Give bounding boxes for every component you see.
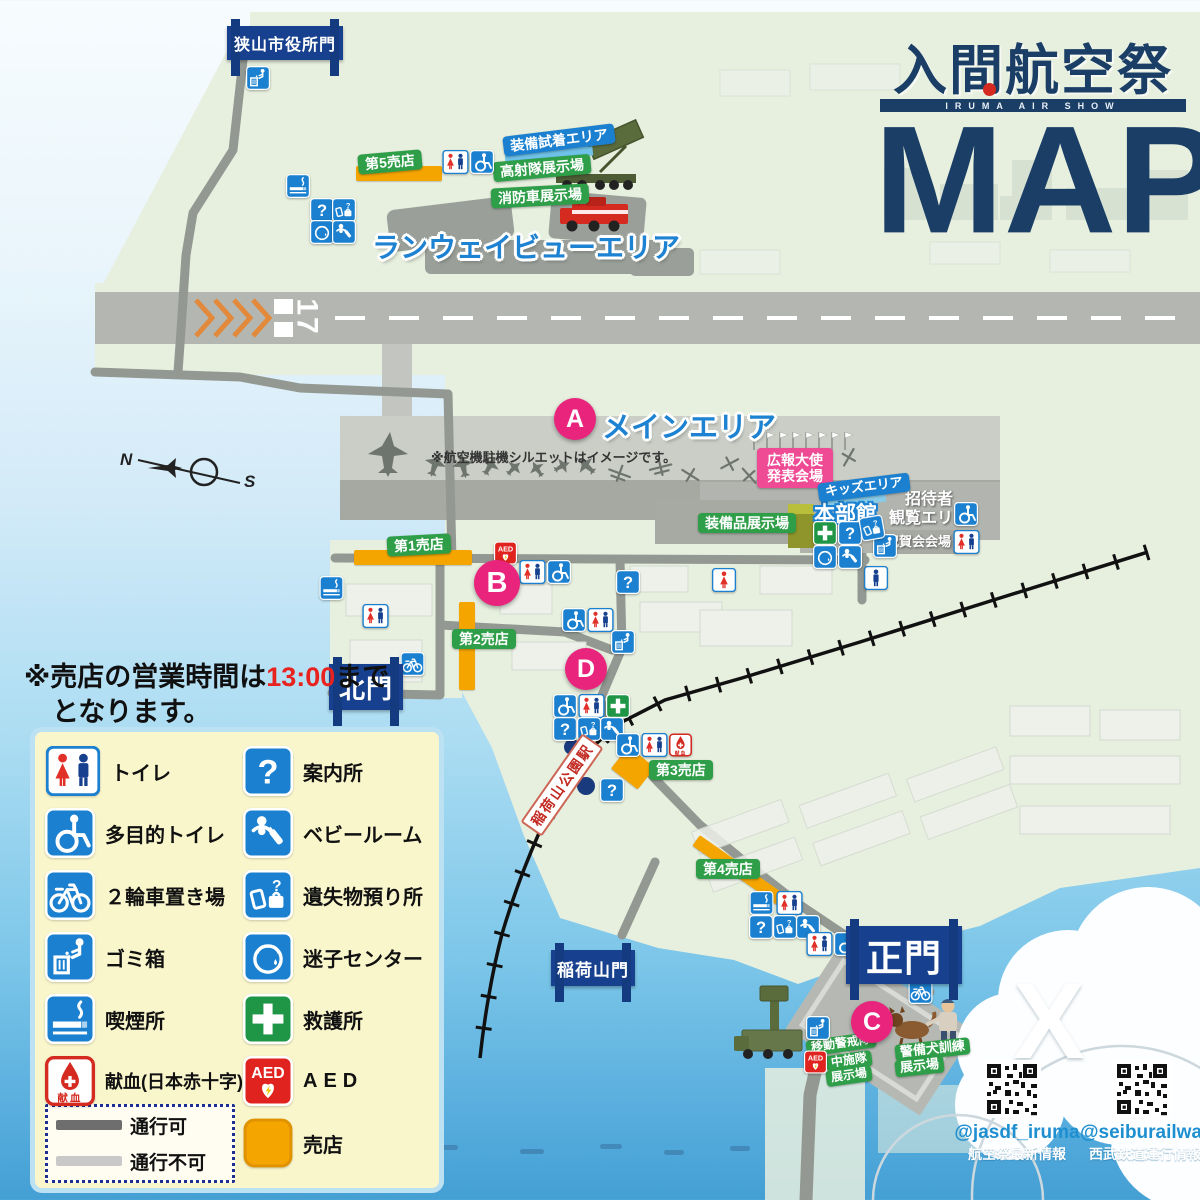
- legend-label: 迷子センター: [303, 943, 423, 972]
- legend-label: ゴミ箱: [105, 943, 165, 972]
- toilet-icon: [442, 150, 469, 174]
- legend-row-aed: AED: [243, 1056, 429, 1106]
- legend-row-trash: ゴミ箱: [45, 932, 243, 982]
- passable-line: [56, 1120, 122, 1130]
- info-icon: [616, 570, 640, 594]
- seibu-desc: 西武鉄道運行情報: [1080, 1144, 1200, 1164]
- gate-main: 正門: [846, 926, 962, 984]
- toilet-icon: [578, 694, 605, 718]
- toilet-icon: [362, 604, 389, 628]
- qr-code-seibu: [1113, 1060, 1171, 1118]
- shop-hours-prefix: ※売店の営業時間は: [24, 662, 266, 692]
- legend-label: トイレ: [111, 757, 171, 786]
- legend-row-accessible-toilet: 多目的トイレ: [45, 808, 243, 858]
- legend-label: 遺失物預り所: [303, 881, 423, 910]
- shop-hours-time: 13:00: [266, 662, 335, 692]
- legend-row-info: 案内所: [243, 746, 429, 796]
- baby-room-icon: [332, 220, 356, 244]
- info-icon: [243, 746, 293, 796]
- accessible-toilet-icon: [954, 502, 978, 526]
- blood-donation-icon: [45, 1056, 95, 1106]
- first-aid-icon: [606, 694, 630, 718]
- shop1-badge: 第1売店: [387, 533, 452, 556]
- trash-icon: [611, 630, 635, 654]
- info-icon: [600, 778, 624, 802]
- compass-north: N: [120, 450, 132, 470]
- impassable-label: 通行不可: [130, 1148, 206, 1175]
- legend-label: ２輪車置き場: [105, 881, 225, 910]
- legend-panel: トイレ 案内所 多目的トイレ ベビールーム ２輪車置き場 遺失物預り所 ゴミ箱 …: [30, 727, 444, 1193]
- accessible-toilet-icon: [45, 808, 95, 858]
- marker-c: C: [851, 1001, 893, 1043]
- qr-code-jasdf: [983, 1060, 1041, 1118]
- accessible-toilet-icon: [616, 733, 640, 757]
- trash-icon: [45, 932, 95, 982]
- pr-line2: 発表会場: [767, 468, 823, 484]
- shop-hours-line2: となります。: [24, 695, 389, 730]
- compass-south: S: [244, 472, 255, 492]
- passage-box: 通行可 通行不可: [45, 1104, 235, 1183]
- lost-child-center-icon: [243, 932, 293, 982]
- lost-and-found-icon: [332, 198, 356, 222]
- legend-row-smoking: 喫煙所: [45, 994, 243, 1044]
- baby-room-icon: [838, 545, 862, 569]
- accessible-toilet-icon: [553, 694, 577, 718]
- baby-room-icon: [243, 808, 293, 858]
- smoking-area-icon: [284, 174, 312, 198]
- legend-label: AED: [303, 1070, 363, 1093]
- silhouette-note: ※航空機駐機シルエットはイメージです。: [431, 447, 676, 466]
- toilet-icon: [45, 746, 101, 796]
- runway-view-area-label: ランウェイビューエリア: [372, 226, 680, 266]
- legend-label: 多目的トイレ: [105, 819, 225, 848]
- toilet-icon: [641, 733, 668, 757]
- legend-label: 喫煙所: [105, 1005, 165, 1034]
- smoking-area-icon: [318, 576, 345, 600]
- legend-row-first-aid: 救護所: [243, 994, 429, 1044]
- legend-row-lost-and-found: 遺失物預り所: [243, 870, 429, 920]
- social-seibu: @seiburailway 西武鉄道運行情報: [1080, 1122, 1200, 1164]
- legend-row-shop: 売店: [243, 1118, 429, 1168]
- info-icon: [553, 717, 577, 741]
- smoking-area-icon: [748, 891, 775, 915]
- accessible-toilet-icon: [470, 150, 494, 174]
- smoking-area-icon: [45, 994, 95, 1044]
- passage-ng-row: 通行不可: [56, 1148, 224, 1175]
- blood-donation-icon: [669, 733, 692, 757]
- shop2-badge: 第2売店: [452, 629, 516, 649]
- trash-icon: [806, 1016, 830, 1040]
- legend-label: 救護所: [303, 1005, 363, 1034]
- accessible-toilet-icon: [547, 560, 571, 584]
- man-toilet-icon: [864, 566, 888, 590]
- pr-line1: 広報大使: [767, 452, 823, 468]
- gate-inariyama: 稲荷山門: [551, 950, 635, 986]
- bicycle-parking-icon: [400, 652, 425, 676]
- passage-ok-row: 通行可: [56, 1112, 224, 1139]
- lost-and-found-icon: [243, 870, 293, 920]
- passable-label: 通行可: [130, 1112, 187, 1139]
- toilet-icon: [806, 932, 833, 956]
- main-area-label: メインエリア: [602, 404, 776, 446]
- legend-label: ベビールーム: [303, 819, 422, 848]
- equipment-display-badge: 装備品展示場: [698, 513, 796, 533]
- info-icon: [310, 198, 334, 222]
- impassable-line: [56, 1156, 122, 1166]
- jasdf-desc: 航空祭最新情報: [952, 1144, 1082, 1164]
- bicycle-parking-icon: [45, 870, 95, 920]
- toilet-icon: [776, 891, 803, 915]
- legend-label: 献血(日本赤十字): [105, 1068, 243, 1094]
- legend-row-toilet: トイレ: [45, 746, 243, 796]
- marker-a: A: [554, 398, 596, 440]
- toilet-icon: [519, 560, 546, 584]
- legend-row-baby-room: ベビールーム: [243, 808, 429, 858]
- shop4-badge: 第4売店: [696, 859, 760, 879]
- shop-icon: [243, 1118, 293, 1168]
- gate-sayama-city-office: 狭山市役所門: [227, 26, 343, 60]
- legend-row-lost-child: 迷子センター: [243, 932, 429, 982]
- lost-and-found-icon: [858, 514, 886, 542]
- shop-hours-suffix: まで: [335, 662, 389, 692]
- marker-d: D: [565, 648, 607, 690]
- trash-icon: [246, 66, 270, 90]
- seibu-handle: @seiburailway: [1080, 1122, 1200, 1144]
- runway: [95, 292, 1200, 344]
- lost-and-found-icon: [773, 915, 797, 939]
- accessible-toilet-icon: [562, 608, 586, 632]
- aed-icon: [804, 1050, 827, 1074]
- legend-row-blood: 献血(日本赤十字): [45, 1056, 243, 1106]
- shop-hours-note: ※売店の営業時間は13:00まで となります。: [24, 660, 389, 730]
- toilet-icon: [953, 530, 980, 554]
- woman-toilet-icon: [712, 568, 736, 592]
- aed-icon: [243, 1056, 293, 1106]
- lost-child-center-icon: [813, 545, 837, 569]
- social-jasdf: @jasdf_iruma 航空祭最新情報: [952, 1122, 1082, 1164]
- toilet-icon: [587, 608, 614, 632]
- first-aid-icon: [813, 521, 837, 545]
- legend-row-passage: 通行可 通行不可: [45, 1104, 243, 1183]
- page-title: 入間航空祭 IRUMA AIR SHOW MAP: [880, 26, 1186, 244]
- title-map: MAP: [874, 112, 1192, 247]
- marker-b: B: [474, 560, 520, 606]
- first-aid-icon: [243, 994, 293, 1044]
- info-icon: [749, 915, 773, 939]
- jasdf-handle: @jasdf_iruma: [952, 1122, 1082, 1144]
- legend-label: 案内所: [303, 757, 363, 786]
- compass: [138, 458, 240, 485]
- legend-label: 売店: [303, 1129, 343, 1158]
- runway-number: 17: [290, 298, 324, 335]
- legend-row-bicycle: ２輪車置き場: [45, 870, 243, 920]
- lost-child-center-icon: [310, 220, 334, 244]
- shop3-badge: 第3売店: [649, 760, 713, 780]
